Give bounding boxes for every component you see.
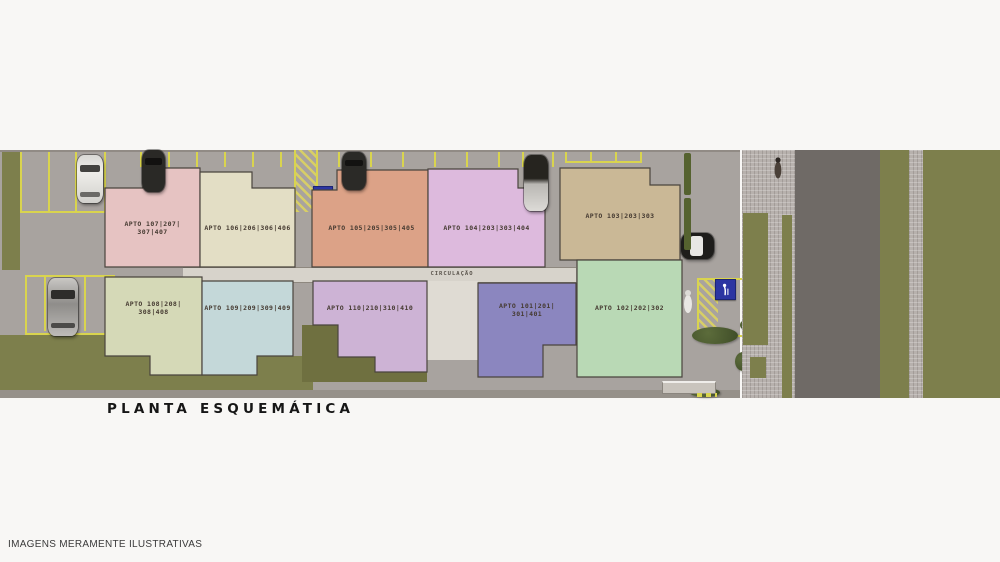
car-silver (48, 278, 78, 336)
apartment-label-line: 308|408 (105, 308, 202, 316)
apartment-label-103: APTO 103|203|303 (560, 212, 680, 220)
apartment-block-109 (202, 281, 293, 375)
apartment-label-line: APTO 101|201| (478, 302, 576, 310)
apartment-block-110 (313, 281, 427, 372)
car-dark (342, 152, 366, 190)
apartment-label-109: APTO 109|209|309|409 (202, 304, 293, 312)
far-sidewalk (909, 150, 923, 398)
apartment-label-line: APTO 107|207| (105, 220, 200, 228)
apartment-label-line: APTO 110|210|310|410 (313, 304, 427, 312)
apartment-block-108 (105, 277, 202, 375)
apartment-label-line: APTO 108|208| (105, 300, 202, 308)
car-white (77, 155, 103, 203)
apartment-label-101: APTO 101|201| 301|401 (478, 302, 576, 318)
apartment-label-104: APTO 104|203|303|404 (428, 224, 545, 232)
car-dark (142, 150, 165, 192)
person-with-cane-icon (719, 283, 732, 296)
bush (692, 327, 738, 344)
apartment-label-line: APTO 102|202|302 (577, 304, 682, 312)
site-plan-canvas: CIRCULAÇÃO APTO 107|207| 307|407 APTO 10… (0, 150, 1000, 398)
pedestrian-figure (772, 155, 784, 182)
grass-verge (880, 150, 909, 398)
apartment-label-line: APTO 103|203|303 (560, 212, 680, 220)
apartment-label-106: APTO 106|206|306|406 (198, 224, 297, 232)
apartment-label-line: 307|407 (105, 228, 200, 236)
sidewalk-grass-strip (782, 215, 792, 398)
sidewalk-grass-square (750, 357, 766, 378)
apartment-label-line: APTO 105|205|305|405 (315, 224, 428, 232)
disclaimer-text: IMAGENS MERAMENTE ILUSTRATIVAS (8, 539, 202, 550)
apartment-block-105 (312, 170, 428, 267)
circulation-label: CIRCULAÇÃO (396, 268, 508, 281)
apartment-block-101 (478, 283, 576, 377)
apartment-block-106 (200, 172, 295, 267)
apartment-label-105: APTO 105|205|305|405 (315, 224, 428, 232)
apartment-label-line: APTO 109|209|309|409 (202, 304, 293, 312)
grass-area-right (923, 150, 1000, 398)
apartment-label-110: APTO 110|210|310|410 (313, 304, 427, 312)
street-road (795, 150, 880, 398)
apartment-label-line: APTO 104|203|303|404 (428, 224, 545, 232)
apartment-label-108: APTO 108|208| 308|408 (105, 300, 202, 316)
apartment-label-102: APTO 102|202|302 (577, 304, 682, 312)
apartment-block-102 (577, 260, 682, 377)
hedge (684, 198, 691, 250)
apartment-label-107: APTO 107|207| 307|407 (105, 220, 200, 236)
senior-parking-sign (715, 279, 736, 300)
apartment-label-line: 301|401 (478, 310, 576, 318)
pedestrian-figure-white (682, 288, 694, 316)
car-two-tone (524, 155, 548, 211)
hedge (684, 153, 691, 195)
apartment-label-line: APTO 106|206|306|406 (198, 224, 297, 232)
sidewalk-grass-strip (743, 213, 768, 345)
plan-title: PLANTA ESQUEMÁTICA (107, 401, 354, 417)
driveway-marking (697, 393, 717, 397)
